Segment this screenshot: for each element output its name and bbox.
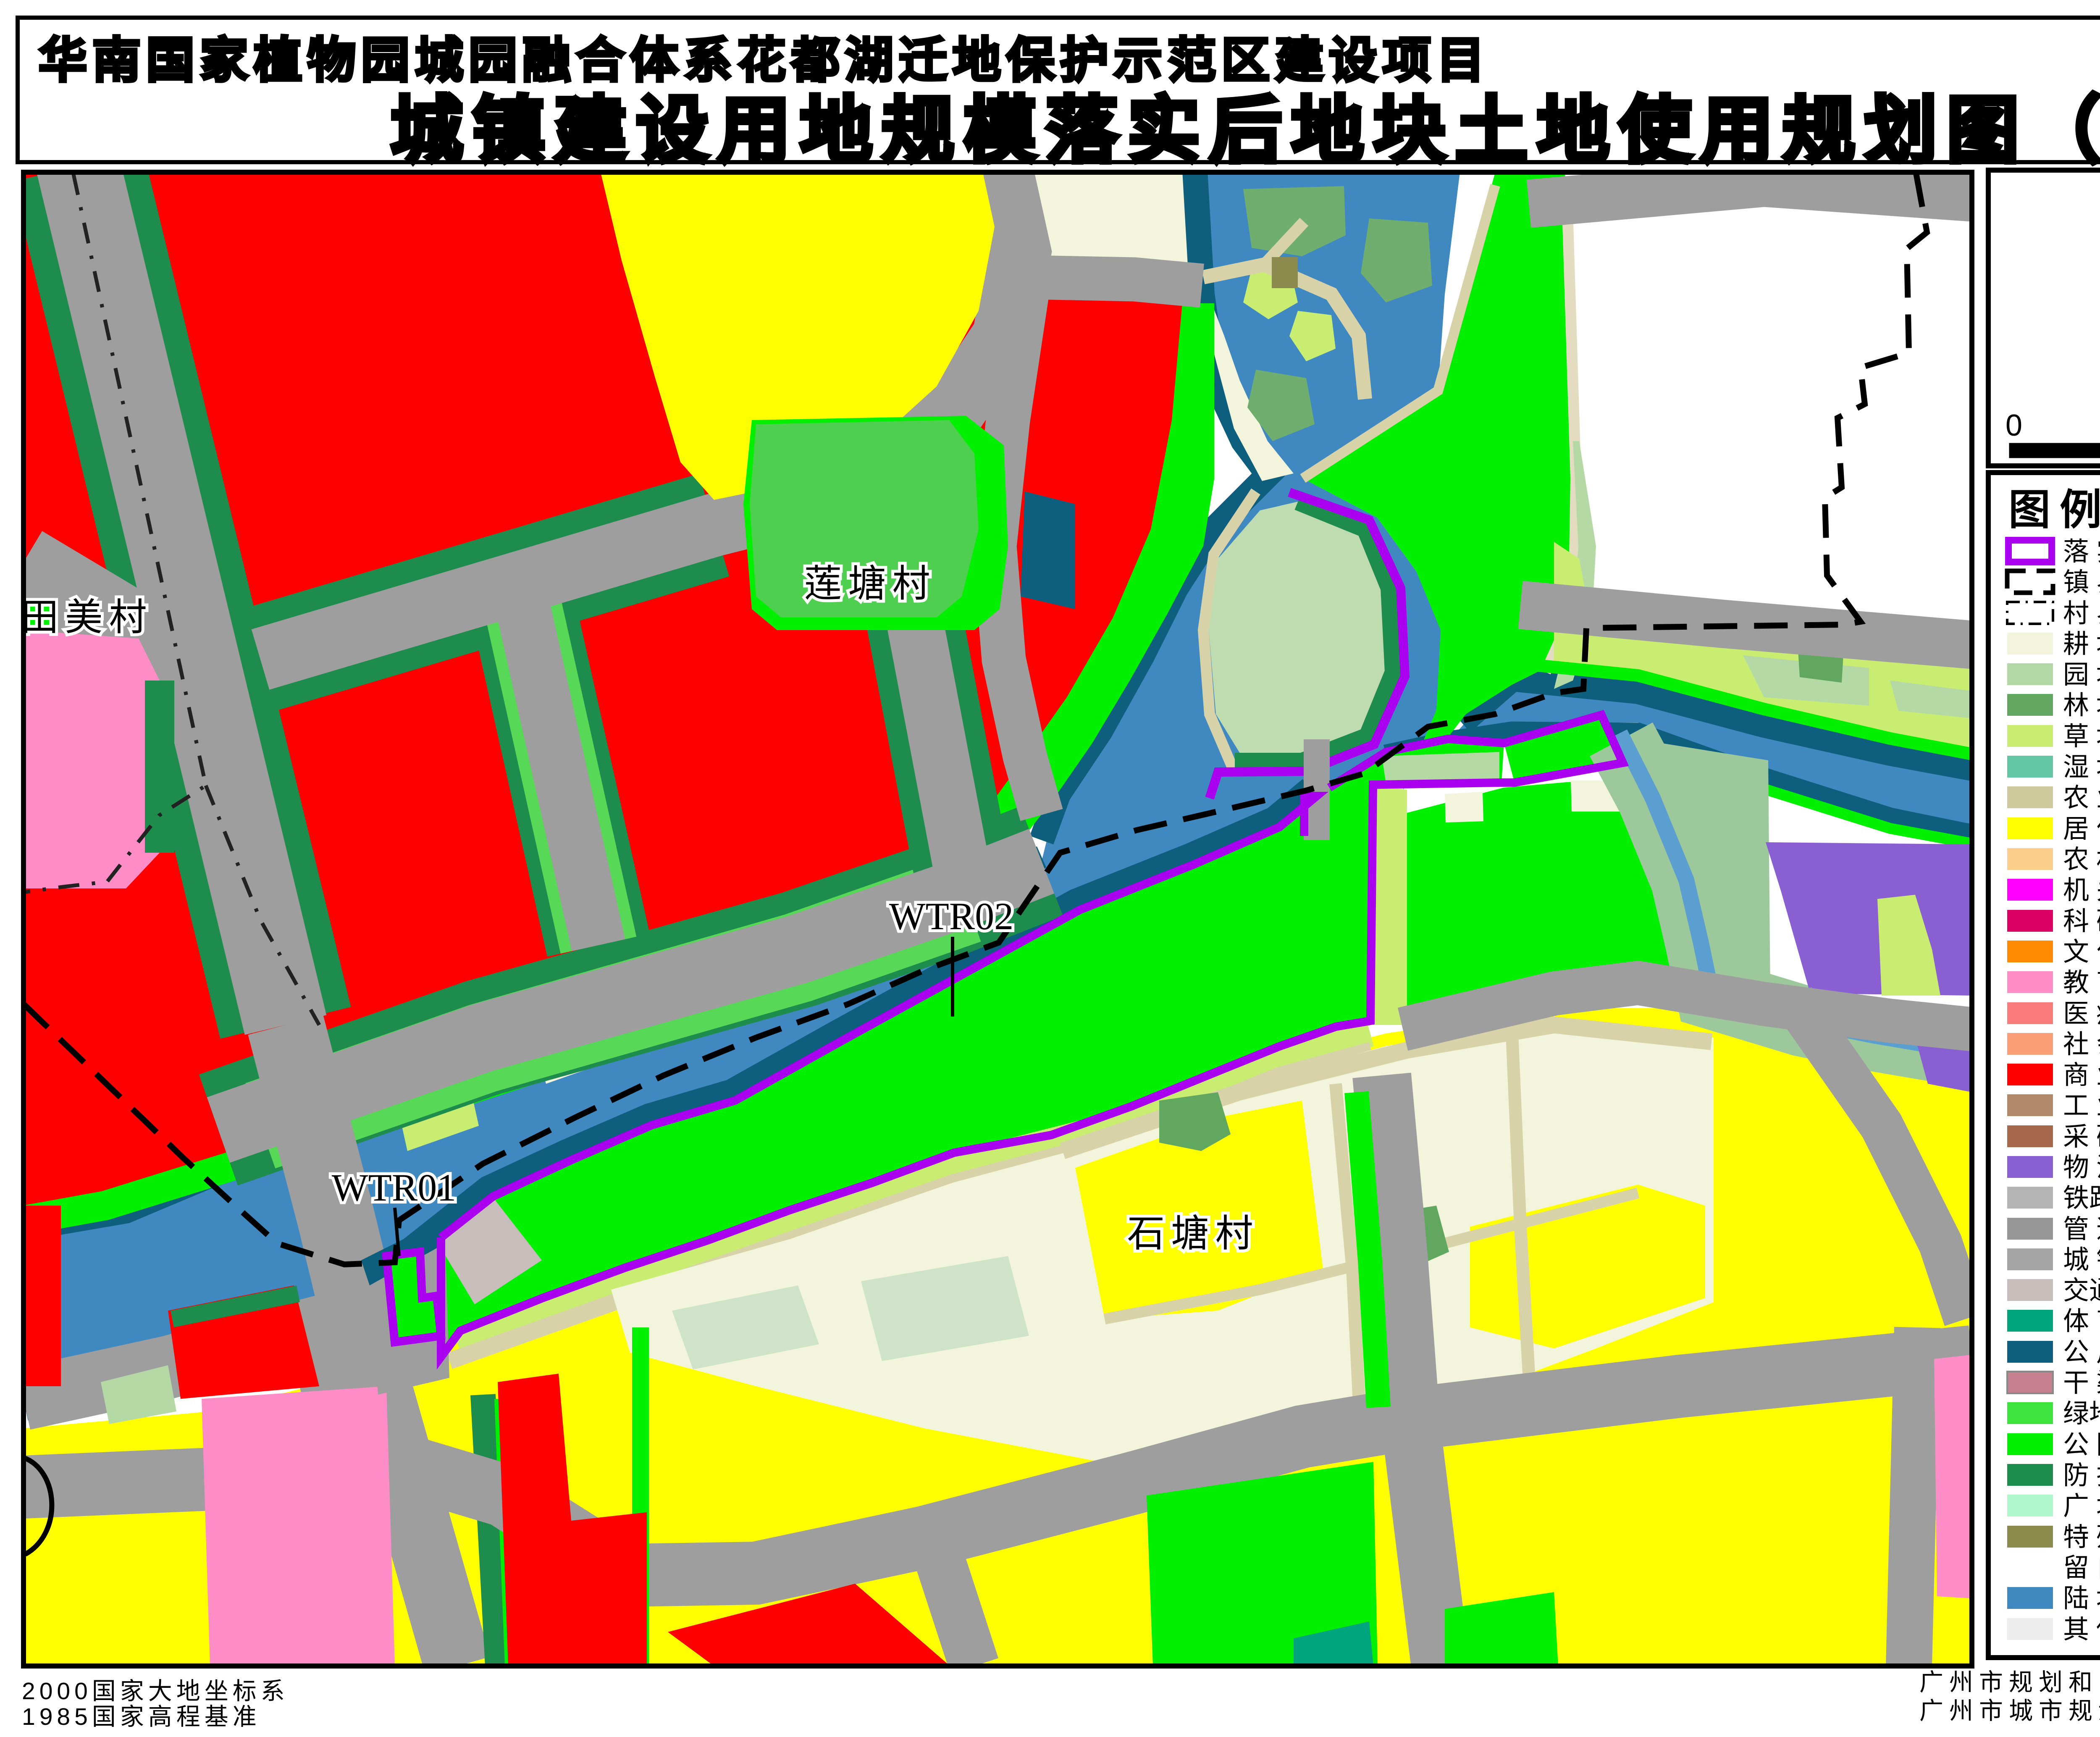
- svg-text:机关团体用地: 机关团体用地: [2063, 876, 2100, 905]
- svg-text:广州市城市规划勘测设计研究院花都分院: 广州市城市规划勘测设计研究院花都分院: [1919, 1698, 2100, 1724]
- svg-text:林地: 林地: [2063, 691, 2100, 720]
- svg-text:湿地: 湿地: [2063, 753, 2100, 782]
- svg-text:城镇道路用地: 城镇道路用地: [2063, 1246, 2100, 1275]
- svg-text:石塘村: 石塘村: [1127, 1213, 1260, 1255]
- svg-text:绿地与开敞空间用地: 绿地与开敞空间用地: [2063, 1399, 2100, 1428]
- svg-text:体育用地: 体育用地: [2063, 1307, 2100, 1336]
- svg-text:干渠: 干渠: [2063, 1369, 2100, 1398]
- svg-text:城镇建设用地规模落实后地块土地使用规划图（调入地块）: 城镇建设用地规模落实后地块土地使用规划图（调入地块）: [391, 90, 2100, 171]
- svg-text:广场用地: 广场用地: [2063, 1492, 2100, 1521]
- svg-text:公园绿地: 公园绿地: [2063, 1430, 2100, 1459]
- svg-text:0: 0: [2005, 409, 2022, 442]
- svg-text:WTR01: WTR01: [332, 1166, 456, 1209]
- svg-text:广州市规划和自然资源局花都区分局: 广州市规划和自然资源局花都区分局: [1919, 1669, 2100, 1696]
- svg-text:1985国家高程基准: 1985国家高程基准: [22, 1703, 261, 1730]
- svg-text:农村宅基地: 农村宅基地: [2063, 845, 2100, 874]
- svg-text:特殊用地: 特殊用地: [2063, 1523, 2100, 1552]
- svg-text:铁路、公路、机场、港口码头用地: 铁路、公路、机场、港口码头用地: [2063, 1184, 2100, 1213]
- svg-text:村界: 村界: [2063, 599, 2100, 628]
- svg-text:交通场站及其他交通用地: 交通场站及其他交通用地: [2063, 1276, 2100, 1305]
- svg-text:科研用地: 科研用地: [2063, 907, 2100, 936]
- svg-text:镇界: 镇界: [2063, 568, 2100, 597]
- svg-text:华南国家植物园城园融合体系花都湖迁地保护示范区建设项目: 华南国家植物园城园融合体系花都湖迁地保护示范区建设项目: [39, 34, 1490, 87]
- svg-text:文化用地: 文化用地: [2063, 938, 2100, 967]
- svg-text:其他土地: 其他土地: [2063, 1615, 2100, 1644]
- svg-text:落实地块: 落实地块: [2063, 537, 2100, 566]
- svg-text:2000国家大地坐标系: 2000国家大地坐标系: [22, 1678, 289, 1705]
- svg-text:商业服务业用地: 商业服务业用地: [2063, 1061, 2100, 1090]
- svg-text:园地: 园地: [2063, 660, 2100, 689]
- svg-text:WTR02: WTR02: [889, 895, 1013, 938]
- svg-text:防护绿地: 防护绿地: [2063, 1461, 2100, 1490]
- svg-text:莲塘村: 莲塘村: [804, 563, 937, 605]
- svg-text:公用设施用地: 公用设施用地: [2063, 1338, 2100, 1367]
- svg-text:采矿用地: 采矿用地: [2063, 1122, 2100, 1151]
- svg-text:耕地: 耕地: [2063, 630, 2100, 659]
- svg-text:教育用地: 教育用地: [2063, 968, 2100, 997]
- svg-text:管道运输用地: 管道运输用地: [2063, 1215, 2100, 1244]
- svg-text:田美村: 田美村: [21, 597, 153, 639]
- svg-text:陆地水域: 陆地水域: [2063, 1584, 2100, 1613]
- svg-text:医疗卫生用地: 医疗卫生用地: [2063, 999, 2100, 1028]
- svg-text:农业设施建设用地: 农业设施建设用地: [2063, 783, 2100, 812]
- svg-text:草地: 草地: [2063, 722, 2100, 751]
- svg-text:留白用地: 留白用地: [2063, 1553, 2100, 1582]
- svg-text:工业用地: 工业用地: [2063, 1091, 2100, 1120]
- svg-text:图例: 图例: [2008, 486, 2100, 533]
- svg-text:社会福利用地: 社会福利用地: [2063, 1030, 2100, 1059]
- svg-text:居住用地: 居住用地: [2063, 815, 2100, 844]
- svg-text:物流仓储用地: 物流仓储用地: [2063, 1153, 2100, 1182]
